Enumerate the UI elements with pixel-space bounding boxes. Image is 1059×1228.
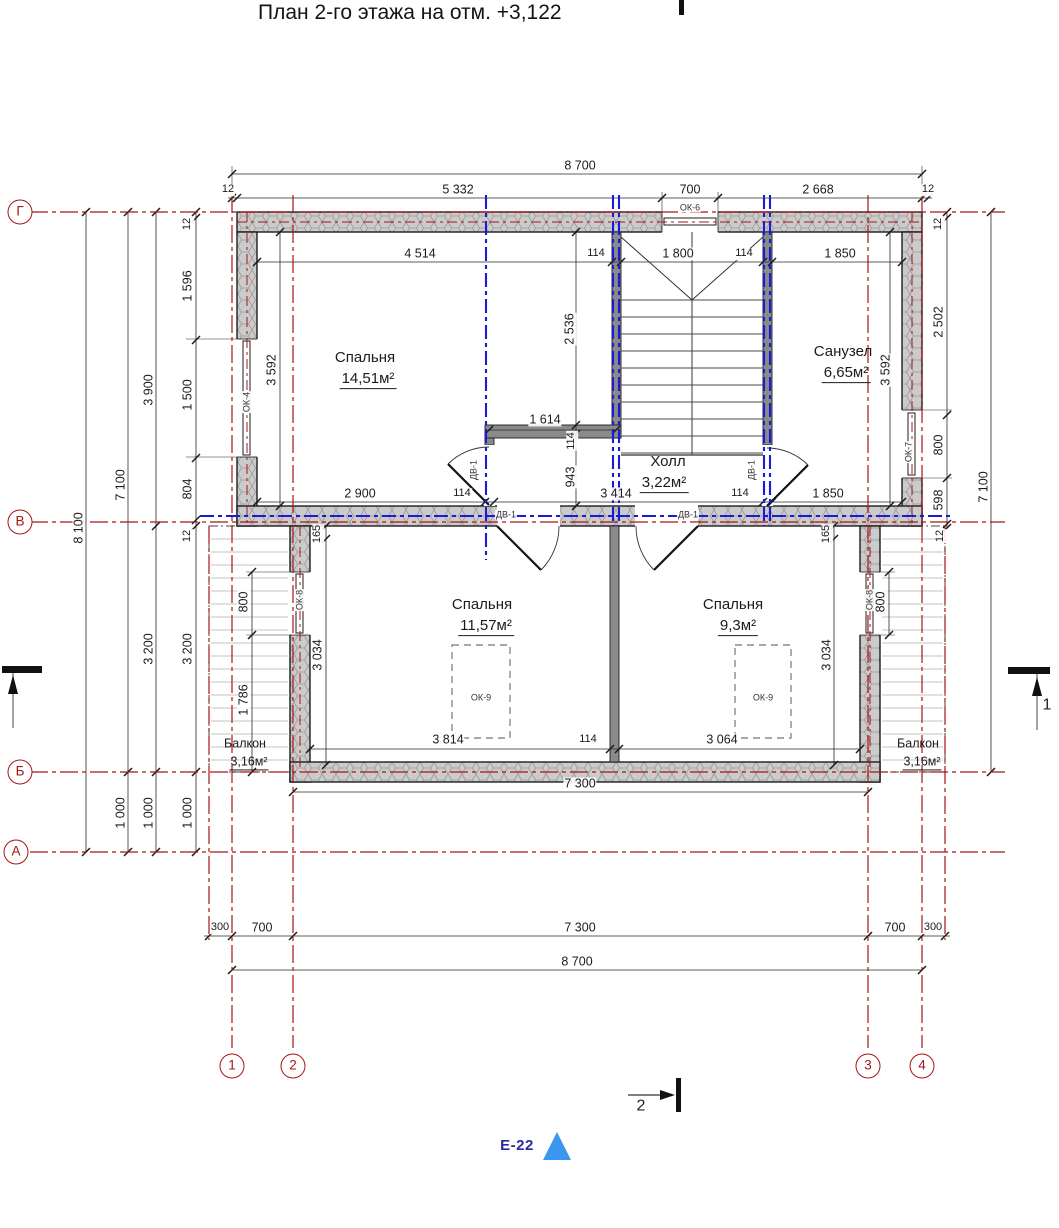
dim: 1 596 — [181, 269, 194, 302]
dim-right-overall: 7 100 — [977, 470, 990, 503]
staircase — [621, 232, 763, 455]
dim: 114 — [586, 248, 606, 260]
sheet-tag: Е-22 — [499, 1138, 535, 1154]
dim: 800 — [237, 591, 250, 614]
section-label-1: 1 — [1042, 698, 1053, 715]
dim: 12 — [182, 529, 194, 543]
dim: 5 332 — [441, 183, 474, 196]
dim: 1 000 — [181, 796, 194, 829]
room-name: Спальня — [702, 597, 764, 613]
room-name: Балкон — [896, 737, 940, 750]
dim: 1 500 — [181, 378, 194, 411]
dim: 12 — [182, 217, 194, 231]
axis-bubble-2: 2 — [281, 1054, 306, 1079]
dim: 3 814 — [431, 733, 464, 746]
dim: 12 — [921, 184, 935, 196]
dim: 12 — [221, 184, 235, 196]
dim-bottom-overall: 8 700 — [560, 955, 593, 968]
dim: 114 — [730, 488, 750, 500]
door-tag: ДВ-1 — [677, 510, 699, 519]
room-name: Спальня — [334, 350, 396, 366]
window-tag: ОК-9 — [470, 693, 492, 702]
dim: 700 — [251, 921, 274, 934]
dim: 12 — [933, 217, 945, 231]
dim-top-overall: 8 700 — [563, 159, 596, 172]
dim: 1 850 — [811, 487, 844, 500]
dim: 2 900 — [343, 487, 376, 500]
dim: 700 — [884, 921, 907, 934]
dim: 165 — [312, 524, 324, 544]
dim: 1 614 — [528, 413, 561, 426]
window-tag: ОК-8 — [295, 589, 304, 611]
room-area: 3,22м² — [640, 475, 689, 493]
drawing-title: План 2-го этажа на отм. +3,122 — [258, 1, 562, 25]
door-tag: ДВ-1 — [495, 510, 517, 519]
room-name: Спальня — [451, 597, 513, 613]
dim: 7 300 — [563, 777, 596, 790]
dim: 7 300 — [563, 921, 596, 934]
room-area: 11,57м² — [458, 618, 514, 636]
dim: 7 100 — [114, 468, 127, 501]
dim: 2 668 — [801, 183, 834, 196]
dimension-ticks — [82, 170, 995, 974]
axis-bubble-v: В — [8, 510, 33, 535]
axis-bubble-g: Г — [8, 200, 33, 225]
dim: 3 592 — [879, 353, 892, 386]
dim: 943 — [564, 466, 577, 489]
dim: 1 850 — [823, 247, 856, 260]
dim: 804 — [181, 478, 194, 501]
room-area: 14,51м² — [340, 371, 397, 389]
window-tag: ОК-9 — [752, 693, 774, 702]
dim: 2 536 — [563, 312, 576, 345]
dim: 300 — [210, 922, 230, 934]
dim: 3 034 — [820, 638, 833, 671]
window-glyphs — [237, 212, 922, 635]
room-name: Санузел — [813, 344, 873, 360]
door-tag: ДВ-1 — [469, 459, 478, 481]
dim: 12 — [935, 529, 947, 543]
window-tag: ОК-7 — [904, 441, 913, 463]
dim: 3 900 — [142, 373, 155, 406]
floor-plan-page: План 2-го этажа на отм. +3,122 8 700125 … — [0, 0, 1059, 1228]
dim: 165 — [821, 524, 833, 544]
dim: 3 064 — [705, 733, 738, 746]
window-tag: ОК-6 — [679, 203, 701, 212]
sheet-triangle-icon — [543, 1132, 571, 1160]
axis-lines-red — [30, 195, 1005, 1048]
dim: 3 592 — [265, 353, 278, 386]
dim: 114 — [734, 248, 754, 260]
dim: 598 — [932, 489, 945, 512]
axis-bubble-1: 1 — [220, 1054, 245, 1079]
axis-bubble-4: 4 — [910, 1054, 935, 1079]
axis-bubble-3: 3 — [856, 1054, 881, 1079]
room-name: Балкон — [223, 737, 267, 750]
dim: 800 — [874, 591, 887, 614]
room-area: 6,65м² — [822, 365, 871, 383]
axis-bubble-a: А — [4, 840, 29, 865]
dim: 2 502 — [932, 305, 945, 338]
dim: 3 200 — [142, 632, 155, 665]
dim: 800 — [932, 434, 945, 457]
dim: 1 000 — [114, 796, 127, 829]
dim: 114 — [452, 488, 472, 500]
room-area: 3,16м² — [229, 755, 268, 770]
dim: 3 034 — [311, 638, 324, 671]
room-name: Холл — [649, 454, 686, 470]
dim: 1 786 — [237, 683, 250, 716]
dim-left-overall: 8 100 — [72, 511, 85, 544]
dim: 3 414 — [599, 487, 632, 500]
dim: 1 800 — [661, 247, 694, 260]
floor-plan-drawing — [0, 0, 1059, 1228]
door-tag: ДВ-1 — [747, 459, 756, 481]
section-label-2: 2 — [636, 1099, 647, 1116]
room-area: 9,3м² — [718, 618, 758, 636]
dim: 3 200 — [181, 632, 194, 665]
dim: 114 — [578, 734, 598, 746]
dim: 114 — [566, 431, 578, 451]
window-tag: ОК-4 — [242, 391, 251, 413]
axis-bubble-b: Б — [8, 760, 33, 785]
dim: 4 514 — [403, 247, 436, 260]
dim: 300 — [923, 922, 943, 934]
wall-openings — [236, 211, 923, 635]
dim: 1 000 — [142, 796, 155, 829]
dim: 700 — [679, 183, 702, 196]
room-area: 3,16м² — [902, 755, 941, 770]
roof-window-ok9 — [452, 645, 791, 738]
